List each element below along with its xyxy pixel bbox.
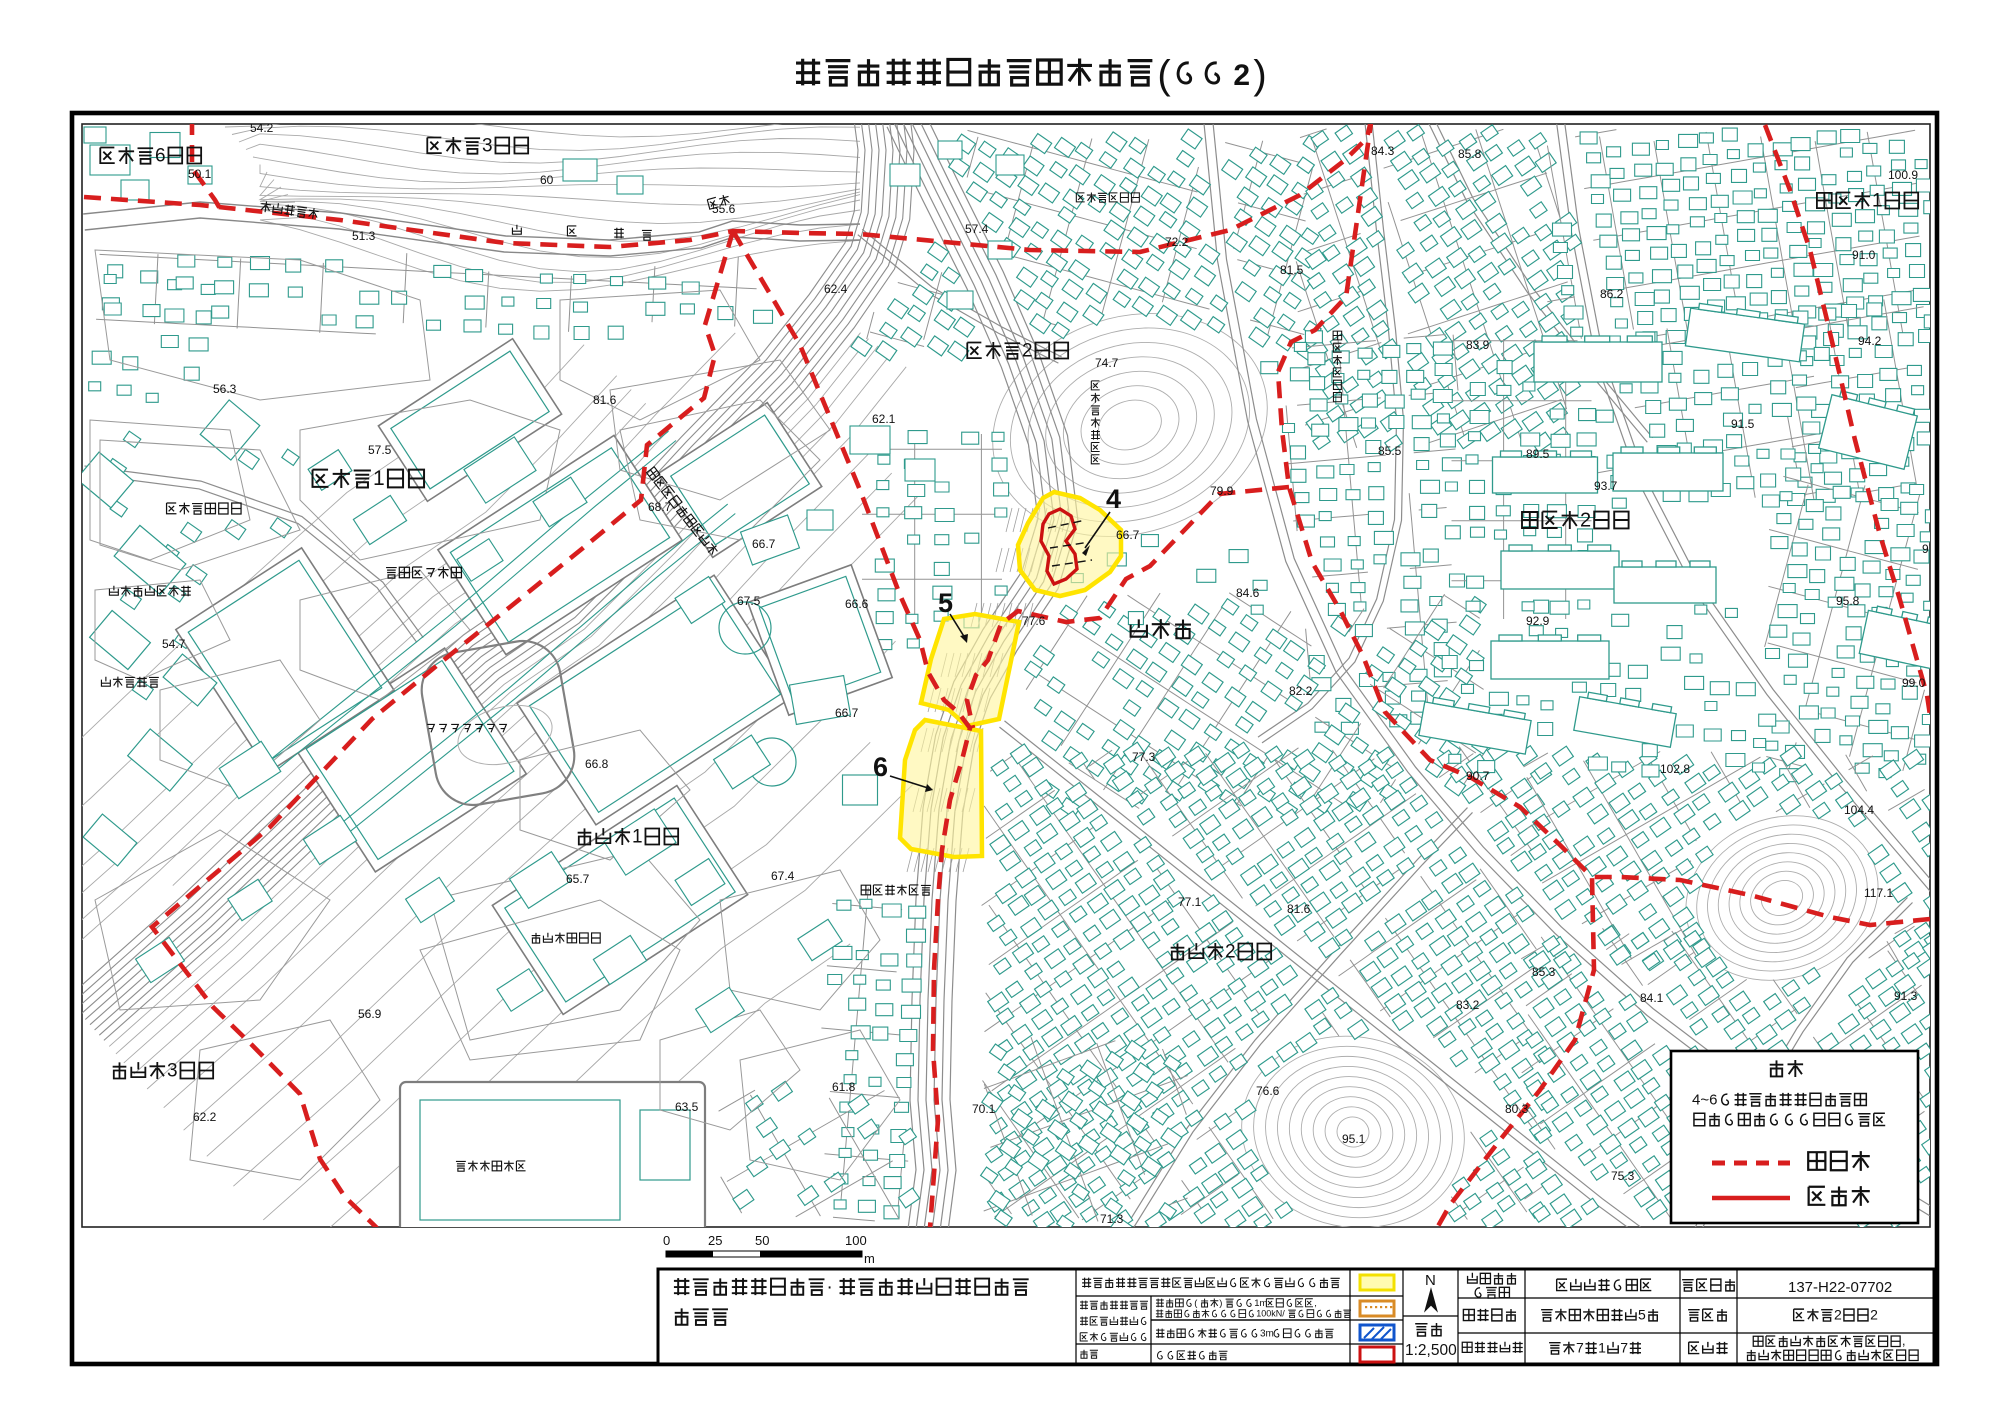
svg-text:): ) — [1253, 53, 1266, 97]
svg-text:62.1: 62.1 — [872, 412, 896, 426]
svg-text:65.7: 65.7 — [566, 872, 590, 886]
svg-text:62.2: 62.2 — [193, 1110, 217, 1124]
svg-text:95.1: 95.1 — [1342, 1132, 1366, 1146]
svg-text:54.7: 54.7 — [162, 637, 186, 651]
svg-text:66.7: 66.7 — [835, 706, 859, 720]
svg-text:5: 5 — [1638, 1307, 1646, 1323]
svg-text:(: ( — [1157, 53, 1171, 97]
svg-text:68.7: 68.7 — [648, 500, 672, 514]
svg-text:77.6: 77.6 — [1022, 614, 1046, 628]
svg-text:66.7: 66.7 — [752, 537, 776, 551]
svg-text:79.9: 79.9 — [1210, 484, 1234, 498]
svg-text:25: 25 — [708, 1233, 722, 1248]
svg-text:,: , — [1314, 1298, 1317, 1309]
svg-text:2: 2 — [1225, 942, 1236, 963]
svg-text:86.2: 86.2 — [1600, 287, 1624, 301]
svg-text:72.2: 72.2 — [1165, 235, 1189, 249]
svg-text:2: 2 — [1870, 1307, 1878, 1323]
svg-text:1: 1 — [632, 827, 643, 848]
svg-text:100.9: 100.9 — [1888, 168, 1918, 182]
svg-text:66.8: 66.8 — [585, 757, 609, 771]
svg-text:3m: 3m — [1260, 1329, 1274, 1340]
svg-text:57.4: 57.4 — [965, 222, 989, 236]
svg-text:117.1: 117.1 — [1864, 886, 1893, 900]
svg-text:55.6: 55.6 — [712, 202, 736, 216]
svg-text:91.3: 91.3 — [1894, 989, 1918, 1003]
svg-text:4~6: 4~6 — [1692, 1091, 1717, 1108]
svg-text:0: 0 — [663, 1233, 670, 1248]
svg-text:·: · — [826, 1277, 832, 1298]
svg-text:1: 1 — [1598, 1340, 1606, 1356]
svg-text:81.5: 81.5 — [1280, 263, 1304, 277]
svg-text:91.5: 91.5 — [1731, 417, 1755, 431]
svg-text:60: 60 — [540, 173, 554, 187]
svg-text:95.8: 95.8 — [1836, 594, 1860, 608]
svg-text:100kN/: 100kN/ — [1256, 1309, 1285, 1319]
svg-text:83.9: 83.9 — [1466, 338, 1490, 352]
svg-text:6: 6 — [873, 752, 888, 782]
svg-text:92.9: 92.9 — [1526, 614, 1550, 628]
svg-text:1: 1 — [373, 467, 385, 490]
svg-text:3: 3 — [167, 1061, 178, 1082]
svg-text:,: , — [1902, 1334, 1905, 1348]
svg-text:67.4: 67.4 — [771, 869, 795, 883]
svg-text:7: 7 — [1620, 1340, 1628, 1356]
svg-text:5: 5 — [938, 588, 953, 618]
svg-text:85.5: 85.5 — [1378, 444, 1402, 458]
svg-text:81.6: 81.6 — [1287, 902, 1311, 916]
svg-text:93.7: 93.7 — [1594, 479, 1618, 493]
svg-text:76.6: 76.6 — [1256, 1084, 1280, 1098]
svg-text:84.1: 84.1 — [1640, 991, 1664, 1005]
svg-text:56.3: 56.3 — [213, 382, 237, 396]
svg-text:56.9: 56.9 — [358, 1007, 382, 1021]
svg-text:4: 4 — [1106, 484, 1121, 514]
svg-text:51.3: 51.3 — [352, 229, 376, 243]
svg-text:75.3: 75.3 — [1611, 1169, 1635, 1183]
svg-text:6: 6 — [155, 146, 166, 167]
svg-text:2: 2 — [1834, 1307, 1842, 1323]
svg-text:100: 100 — [845, 1233, 867, 1248]
svg-text:2: 2 — [1022, 341, 1033, 362]
svg-text:84.6: 84.6 — [1236, 586, 1260, 600]
svg-text:82.2: 82.2 — [1289, 684, 1313, 698]
svg-text:102.8: 102.8 — [1660, 762, 1690, 776]
svg-text:1: 1 — [1872, 191, 1883, 212]
svg-text:3: 3 — [482, 136, 493, 157]
svg-text:85.8: 85.8 — [1458, 147, 1482, 161]
svg-text:7: 7 — [1576, 1340, 1584, 1356]
svg-text:63.5: 63.5 — [675, 1100, 699, 1114]
svg-text:91.0: 91.0 — [1852, 248, 1876, 262]
svg-text:137-H22-07702: 137-H22-07702 — [1788, 1279, 1892, 1296]
svg-text:89.5: 89.5 — [1526, 447, 1550, 461]
svg-text:80.3: 80.3 — [1505, 1102, 1529, 1116]
svg-text:77.3: 77.3 — [1132, 750, 1156, 764]
svg-text:1m: 1m — [1254, 1298, 1267, 1309]
svg-text:70.1: 70.1 — [972, 1102, 996, 1116]
svg-text:61.8: 61.8 — [832, 1080, 856, 1094]
svg-text:67.5: 67.5 — [737, 594, 761, 608]
svg-text:94.2: 94.2 — [1858, 334, 1882, 348]
svg-text:2: 2 — [1580, 509, 1591, 531]
svg-text:m: m — [864, 1251, 875, 1266]
svg-text:85.3: 85.3 — [1532, 965, 1556, 979]
svg-text:66.7: 66.7 — [1116, 528, 1140, 542]
svg-text:N: N — [1425, 1272, 1436, 1289]
svg-text:2: 2 — [1233, 59, 1250, 92]
svg-text:50.1: 50.1 — [188, 167, 212, 181]
svg-text:104.4: 104.4 — [1844, 803, 1874, 817]
svg-text:81.6: 81.6 — [593, 393, 617, 407]
svg-text:99.0: 99.0 — [1902, 676, 1926, 690]
svg-text:77.1: 77.1 — [1178, 895, 1202, 909]
svg-text:): ) — [1219, 1298, 1222, 1309]
svg-text:1:2,500: 1:2,500 — [1405, 1342, 1457, 1359]
svg-text:62.4: 62.4 — [824, 282, 848, 296]
svg-text:57.5: 57.5 — [368, 443, 392, 457]
svg-text:90.7: 90.7 — [1466, 769, 1490, 783]
svg-text:74.7: 74.7 — [1095, 356, 1119, 370]
svg-text:50: 50 — [755, 1233, 769, 1248]
svg-text:84.3: 84.3 — [1371, 144, 1395, 158]
svg-text:66.6: 66.6 — [845, 597, 869, 611]
svg-text:71.3: 71.3 — [1100, 1212, 1124, 1226]
svg-text:83.2: 83.2 — [1456, 998, 1480, 1012]
